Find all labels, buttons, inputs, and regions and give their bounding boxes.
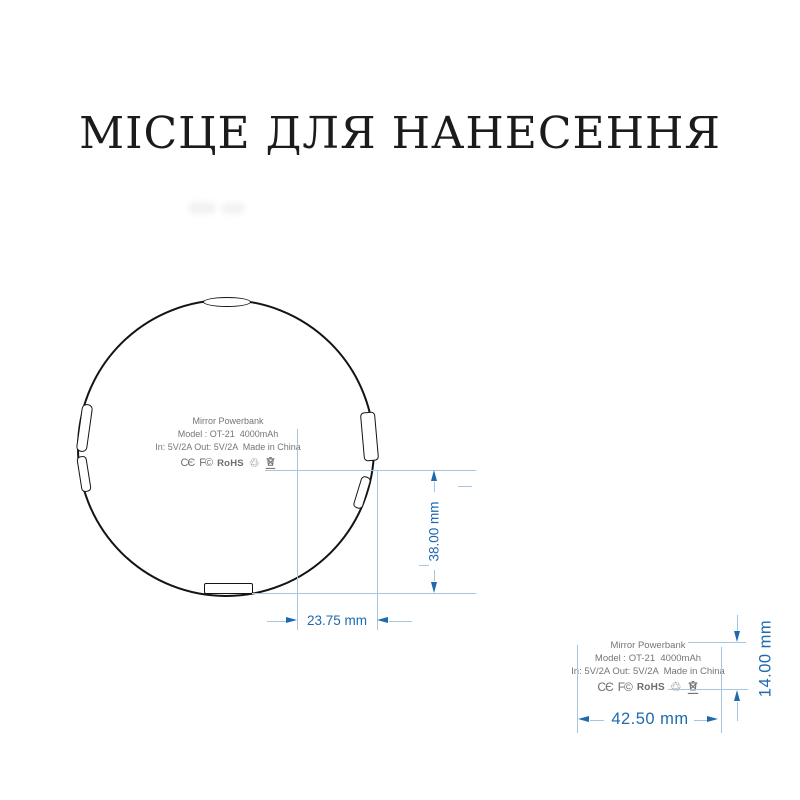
dimension-tail-bottom — [737, 702, 738, 721]
label-specs-line: In: 5V/2A Out: 5V/2A Made in China — [128, 441, 328, 454]
right-upper-slot-feature — [360, 411, 379, 461]
device-label-side-view: Mirror Powerbank Model : OT-21 4000mAh I… — [548, 639, 748, 695]
extension-line-left — [297, 429, 298, 630]
dimension-arrow-down — [734, 631, 740, 642]
extension-line-right — [377, 470, 378, 630]
top-view-width-dimension: 23.75 mm — [299, 613, 375, 628]
dimension-arrow-left — [377, 617, 388, 623]
dimension-tail-right — [389, 621, 412, 622]
dimension-tick — [458, 486, 472, 487]
label-model-line: Model : OT-21 4000mAh — [128, 428, 328, 441]
dimension-tick — [419, 565, 429, 566]
label-model-line: Model : OT-21 4000mAh — [548, 652, 748, 665]
label-product-name: Mirror Powerbank — [548, 639, 748, 652]
dimension-arrow-left — [578, 716, 589, 722]
dimension-arrow-right — [707, 716, 718, 722]
certification-row: CЄ F© RoHS ♲ — [548, 680, 748, 695]
rohs-label: RoHS — [217, 457, 244, 470]
extension-line-bottom — [252, 593, 476, 594]
recycle-icon: ♲ — [249, 457, 260, 470]
page-title: МІСЦЕ ДЛЯ НАНЕСЕННЯ — [0, 108, 800, 159]
extension-line-top — [265, 470, 476, 471]
side-view-height-dimension: 14.00 mm — [757, 604, 776, 714]
extension-line-right — [721, 647, 722, 733]
rohs-label: RoHS — [637, 681, 665, 694]
ce-mark-icon: CЄ — [180, 457, 194, 470]
certification-row: CЄ F© RoHS ♲ — [128, 456, 328, 470]
watermark-smudge — [188, 202, 216, 214]
weee-bin-icon — [687, 680, 699, 695]
label-product-name: Mirror Powerbank — [128, 415, 328, 428]
dimension-arrow-right — [286, 617, 297, 623]
ce-mark-icon: CЄ — [597, 681, 612, 694]
dimension-line-segment — [434, 570, 435, 581]
recycle-icon: ♲ — [670, 681, 682, 694]
dimension-line-segment — [694, 720, 707, 721]
top-slot-feature — [203, 297, 251, 307]
dimension-tail-top — [737, 615, 738, 631]
dimension-arrow-down — [431, 582, 437, 593]
fcc-mark-icon: F© — [199, 457, 212, 470]
fcc-mark-icon: F© — [618, 681, 632, 694]
dimension-arrow-up — [734, 690, 740, 701]
dimension-tail-left — [267, 621, 286, 622]
weee-bin-icon — [265, 456, 276, 470]
watermark-smudge — [221, 203, 245, 214]
drawing-canvas: МІСЦЕ ДЛЯ НАНЕСЕННЯ Mirror Powerbank Mod… — [0, 0, 800, 800]
side-view-width-dimension: 42.50 mm — [590, 710, 710, 729]
device-label-top-view: Mirror Powerbank Model : OT-21 4000mAh I… — [128, 415, 328, 470]
extension-line-top — [688, 642, 746, 643]
bottom-tab-feature — [204, 583, 253, 594]
label-specs-line: In: 5V/2A Out: 5V/2A Made in China — [548, 665, 748, 678]
